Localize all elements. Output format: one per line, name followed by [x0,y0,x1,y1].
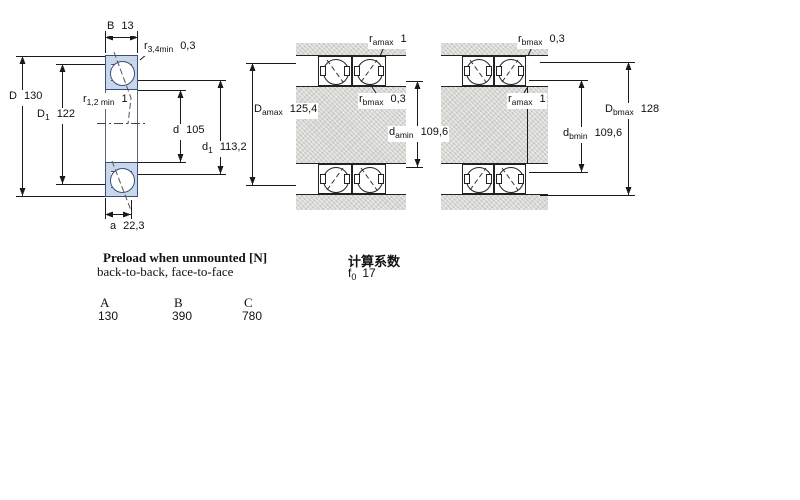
dim-label-d: d105 [172,124,205,140]
cage-pocket [486,174,492,184]
bearing-unit [352,164,386,194]
cage-pocket [354,174,360,184]
preload-value-c: 780 [242,309,262,323]
dim-label-dbmin: dbmin109,6 [562,127,623,143]
dim-label-B: B13 [106,20,135,36]
bearing-unit [462,164,494,194]
preload-value-a: 130 [98,309,118,323]
dim-label-Dbmax: Dbmax128 [604,103,660,119]
cage-pocket [378,66,384,76]
dim-label-r12min: r1,2 min1 [82,93,129,109]
bearing-unit [318,164,352,194]
cage-pocket [518,174,524,184]
bearing-unit [352,56,386,86]
cage-pocket [496,66,502,76]
dim-label-rbmax-a: rbmax0,3 [358,93,407,109]
bearing-drawing-page: B13 r3,4min0,3 D130 D1122 r1,2 min1 d105… [0,0,800,500]
bearing-ball [110,168,135,193]
dim-label-Damax: Damax125,4 [253,103,318,119]
dim-label-D1: D1122 [36,108,76,124]
calc-factor-f0: f017 [348,266,376,282]
bearing-cross-section-top [105,55,138,90]
bearing-unit [494,56,526,86]
cage-pocket [496,174,502,184]
cage-pocket [378,174,384,184]
dim-label-damin: damin109,6 [388,126,449,142]
cage-pocket [464,66,470,76]
bearing-ball [110,61,135,86]
dim-label-ramax-b: ramax1 [507,93,547,109]
dim-label-ramax-a: ramax1 [368,33,408,49]
dim-label-D: D130 [8,90,43,106]
bearing-unit [494,164,526,194]
cage-pocket [320,174,326,184]
cage-pocket [464,174,470,184]
cage-pocket [354,66,360,76]
preload-value-b: 390 [172,309,192,323]
cage-pocket [518,66,524,76]
bearing-unit [462,56,494,86]
cage-pocket [320,66,326,76]
bearing-cross-section-bottom [105,162,138,197]
cage-pocket [344,66,350,76]
dim-label-rbmax-b: rbmax0,3 [517,33,566,49]
preload-subtitle: back-to-back, face-to-face [97,264,233,280]
dim-label-a: a22,3 [109,220,146,236]
dim-label-r34min: r3,4min0,3 [143,40,196,56]
dim-label-d1: d1113,2 [201,141,248,157]
cage-pocket [344,174,350,184]
bearing-unit [318,56,352,86]
cage-pocket [486,66,492,76]
